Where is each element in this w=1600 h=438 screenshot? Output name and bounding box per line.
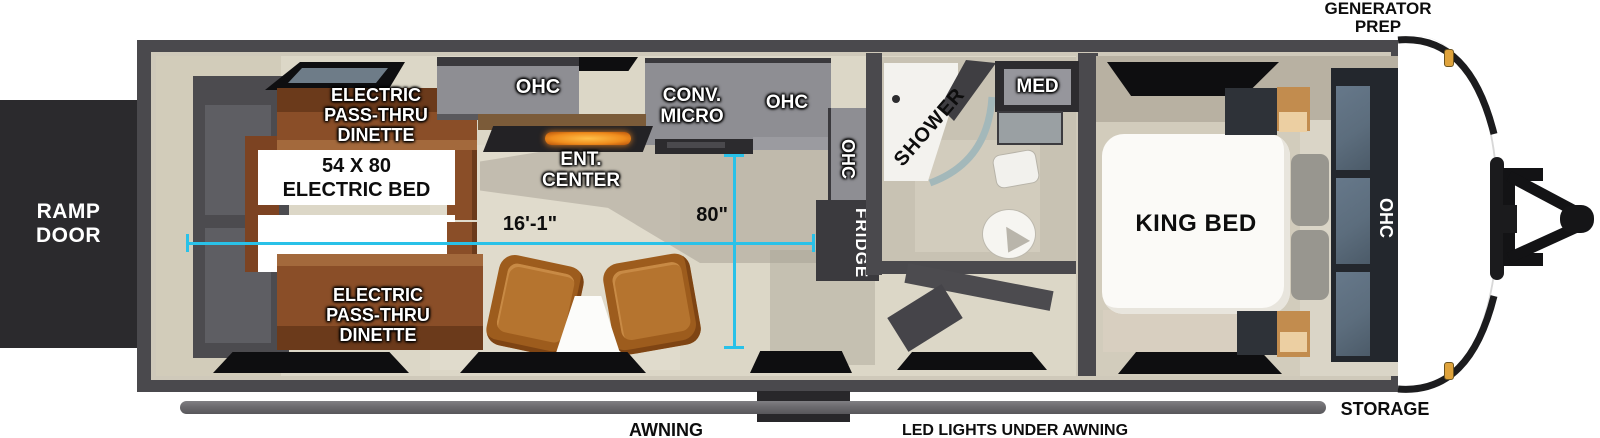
dinette-bottom-seat-edge [277,254,483,266]
med-cabinet-face: MED [1004,69,1071,105]
window-top-dinette-glass [288,68,388,83]
bathroom-vanity [997,111,1063,145]
ohc-kitchen-label: OHC [747,92,827,114]
hitch-coupler [1560,205,1594,233]
ohc-left-cabinet-top [437,57,579,66]
dinette-bottom-label: ELECTRIC PASS-THRU DINETTE [285,285,471,345]
med-label: MED [1016,76,1058,98]
awning-bar [180,401,1326,414]
storage-label: STORAGE [1328,399,1442,420]
king-bed: KING BED [1102,134,1290,314]
dim-width-tick-bottom [724,346,744,349]
nightstand-bottom-cabinet [1237,311,1277,355]
fireplace-flame [545,132,631,145]
ramp-door-label: RAMP DOOR [36,200,101,248]
ohc-left-label: OHC [468,76,608,99]
dim-length-tick-left [186,234,189,252]
marker-light-bottom [1444,362,1454,380]
ramp-door: RAMP DOOR [0,100,137,348]
electric-bed-label: 54 X 80 ELECTRIC BED [283,154,431,202]
awning-label: AWNING [606,420,726,438]
bathroom-bottom-wall [866,261,1082,274]
shower-drain-icon [892,95,900,103]
kitchen-counter-edge [753,137,831,150]
hitch-mid-block [1495,205,1517,233]
window-bottom-living [460,352,646,373]
nightstand-top-cabinet [1225,88,1277,135]
cooktop-grate [667,142,725,148]
window-bottom-kitchen [750,351,852,373]
floorplan-canvas: GENERATOR PREP RAMP DOOR ELECTRIC PASS-T… [0,0,1600,438]
bathroom-left-wall [866,53,882,275]
dim-length-label: 16'-1" [470,213,590,236]
bed-pillow-bottom [1291,230,1329,300]
marker-light-top [1444,49,1454,67]
trailer-hitch [1480,150,1600,290]
bed-pillow-top [1291,154,1329,226]
window-bottom-entry [897,352,1047,370]
window-bottom-dinette [213,352,409,373]
bed-foot-bench [1103,310,1239,352]
dim-width-line [733,155,736,349]
led-lights-label: LED LIGHTS UNDER AWNING [895,422,1135,438]
wardrobe-door-3 [1336,272,1370,356]
conv-micro-label: CONV. MICRO [645,85,739,127]
dim-length-tick-right [812,234,815,252]
dim-width-label: 80" [676,204,728,227]
nightstand-bottom-wood-face [1280,332,1307,352]
ohc-kitchen-side-label: OHC [836,132,858,186]
king-bed-label: KING BED [1135,210,1256,238]
ent-center-label: ENT. CENTER [521,149,641,191]
electric-bed-box: 54 X 80 ELECTRIC BED [258,150,455,205]
recliner-chair-right [601,251,704,357]
wardrobe-door-1 [1336,86,1370,170]
dim-width-tick-top [724,154,744,157]
nightstand-top-wood-face [1279,112,1307,132]
wardrobe-door-2 [1336,178,1370,264]
dim-length-line [187,242,815,245]
